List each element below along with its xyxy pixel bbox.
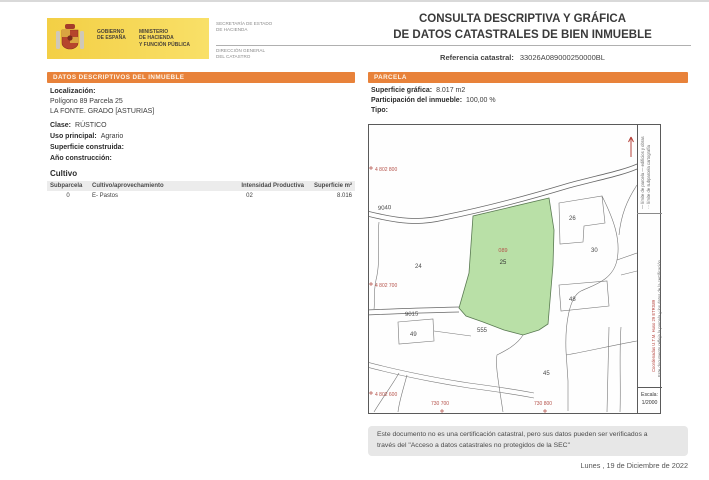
subject-parcel-code: 089 (498, 248, 507, 254)
cadastral-reference-label: Referencia catastral: (440, 53, 514, 62)
col-subparcela: Subparcela (47, 181, 89, 191)
cultivo-title: Cultivo (50, 169, 77, 178)
parcel-number: 24 (415, 264, 422, 270)
cadastral-map: 9040 9015 24 26 30 48 555 49 45 089 25 4… (368, 124, 661, 414)
field-ano-construccion: Año construcción: (50, 155, 116, 162)
parcel-map-drawing: 9040 9015 24 26 30 48 555 49 45 089 25 4… (369, 125, 637, 413)
road-label: 9040 (378, 205, 392, 212)
coord-label: 4 802 600 (375, 392, 397, 398)
field-clase: Clase:RÚSTICO (50, 122, 107, 129)
cadastral-reference: Referencia catastral:33026A089000250000B… (355, 53, 690, 62)
gobierno-label: GOBIERNO DE ESPAÑA (97, 29, 126, 42)
coord-label: 730 800 (534, 401, 552, 407)
coord-label: 4 802 700 (375, 283, 397, 289)
direccion-label: DIRECCIÓN GENERAL DEL CATASTRO (216, 48, 265, 60)
parcel-number: 30 (591, 248, 598, 254)
localizacion-line2: LA FONTE. GRADO [ASTURIAS] (50, 108, 154, 115)
field-tipo: Tipo: (371, 107, 392, 114)
map-legend-line1: — límite de parcela — edificios y obras (640, 136, 645, 209)
map-legend-line2: ··· límite de subparcela cartografía (646, 145, 651, 209)
north-mark-icon (629, 137, 634, 157)
field-superficie-construida: Superficie construida: (50, 144, 128, 151)
parcel-number: 45 (543, 371, 550, 377)
secretaria-label: SECRETARÍA DE ESTADO DE HACIENDA (216, 21, 272, 33)
road-label: 9015 (405, 312, 419, 318)
cultivo-table-header-row: Subparcela Cultivo/aprovechamiento Inten… (47, 181, 355, 191)
parcel-number: 555 (477, 328, 488, 334)
map-scale: Escala: 1/2000 (637, 387, 662, 413)
field-uso-principal: Uso principal:Agrario (50, 133, 123, 140)
cadastral-reference-value: 33026A089000250000BL (520, 53, 605, 62)
header-divider (216, 45, 691, 46)
disclaimer-box: Este documento no es una certificación c… (368, 426, 688, 456)
subject-parcel-polygon (459, 198, 554, 335)
cadastral-document-page: GOBIERNO DE ESPAÑA MINISTERIO DE HACIEND… (0, 0, 709, 480)
cultivo-table-row: 0 E- Pastos 02 8.016 (47, 191, 355, 201)
utm-note: Coordenadas U.T.M. Huso 29 ETRS89 (651, 300, 656, 372)
parcel-number: 26 (569, 216, 576, 222)
certification-note: Este documento refleja la parcela y los … (657, 260, 662, 377)
localizacion-label: Localización: (50, 86, 96, 95)
coord-label: 730 700 (431, 401, 449, 407)
section-header-datos-descriptivos: DATOS DESCRIPTIVOS DEL INMUEBLE (47, 72, 355, 83)
cultivo-table: Subparcela Cultivo/aprovechamiento Inten… (47, 181, 355, 201)
localizacion-line1: Polígono 89 Parcela 25 (50, 98, 123, 105)
government-logo-box: GOBIERNO DE ESPAÑA MINISTERIO DE HACIEND… (47, 18, 209, 59)
page-title: CONSULTA DESCRIPTIVA Y GRÁFICA DE DATOS … (355, 11, 690, 43)
field-participacion: Participación del inmueble:100,00 % (371, 97, 496, 104)
section-header-parcela: PARCELA (368, 72, 688, 83)
col-superficie: Superficie m² (307, 181, 355, 191)
field-superficie-grafica: Superficie gráfica:8.017 m2 (371, 87, 465, 94)
coord-label: 4 802 800 (375, 167, 397, 173)
spain-coat-of-arms-icon (53, 22, 87, 55)
col-cultivo: Cultivo/aprovechamiento (89, 181, 217, 191)
parcel-number: 48 (569, 297, 576, 303)
strip-divider (637, 213, 662, 214)
col-intensidad: Intensidad Productiva (217, 181, 307, 191)
subject-parcel-number: 25 (500, 260, 507, 266)
parcel-number: 49 (410, 332, 417, 338)
ministerio-label: MINISTERIO DE HACIENDA Y FUNCIÓN PÚBLICA (139, 29, 190, 48)
document-date: Lunes , 19 de Diciembre de 2022 (368, 461, 688, 470)
